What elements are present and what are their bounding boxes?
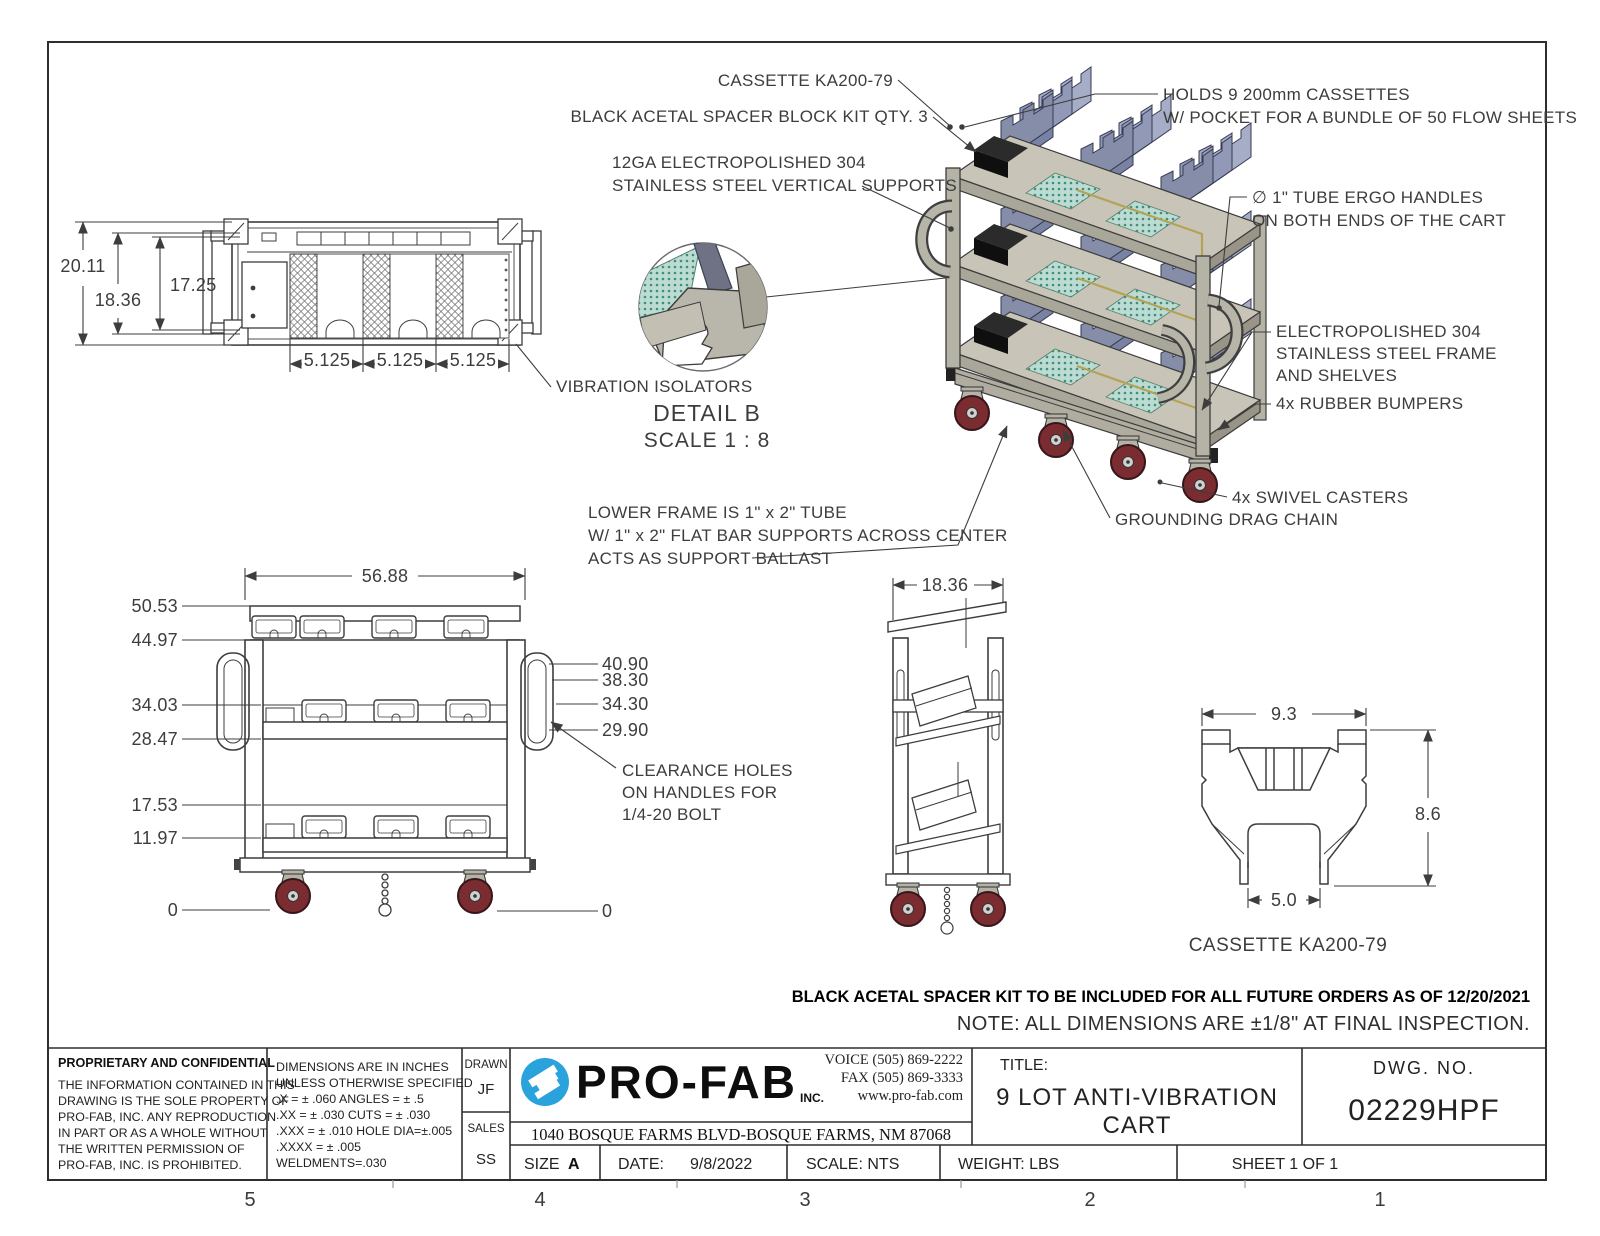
label-handles-1: ∅ 1" TUBE ERGO HANDLES bbox=[1252, 188, 1483, 207]
label-holds-2: W/ POCKET FOR A BUNDLE OF 50 FLOW SHEETS bbox=[1163, 108, 1577, 127]
tolerance-line: WELDMENTS=.030 bbox=[276, 1156, 387, 1170]
front-clip bbox=[302, 700, 346, 722]
zone-3: 3 bbox=[799, 1189, 810, 1211]
top-view-perforated-panels bbox=[290, 254, 463, 338]
label-lower-frame-1: LOWER FRAME IS 1" x 2" TUBE bbox=[588, 503, 847, 522]
company-cell: PRO-FAB INC. VOICE (505) 869-2222 FAX (5… bbox=[521, 1052, 964, 1144]
scale-value: SCALE: NTS bbox=[806, 1156, 899, 1173]
proprietary-heading: PROPRIETARY AND CONFIDENTIAL bbox=[58, 1056, 275, 1070]
sales-initials: SS bbox=[476, 1151, 496, 1168]
profab-logo-icon bbox=[521, 1058, 569, 1106]
proprietary-line: IN PART OR AS A WHOLE WITHOUT bbox=[58, 1126, 268, 1140]
top-view-cassette-slots bbox=[317, 254, 509, 338]
label-casters: 4x SWIVEL CASTERS bbox=[1232, 488, 1408, 507]
dim-28-47: 28.47 bbox=[131, 729, 178, 749]
drawing-canvas: 20.11 18.36 17.25 5.125 5.125 5.125 VIBR… bbox=[0, 0, 1600, 1236]
tolerance-line: .XX = ± .030 CUTS = ± .030 bbox=[276, 1108, 430, 1122]
dim-38-30: 38.30 bbox=[602, 670, 649, 690]
label-frame-1: ELECTROPOLISHED 304 bbox=[1276, 322, 1481, 341]
front-mid-rail bbox=[263, 722, 507, 739]
front-clip bbox=[300, 616, 344, 638]
dim-18-36-side: 18.36 bbox=[922, 575, 969, 595]
size-value: A bbox=[568, 1156, 580, 1173]
company-fax: FAX (505) 869-3333 bbox=[841, 1070, 963, 1086]
front-bumper bbox=[234, 859, 240, 870]
proprietary-line: PRO-FAB, INC. ANY REPRODUCTION bbox=[58, 1110, 276, 1124]
zone-2: 2 bbox=[1084, 1189, 1095, 1211]
side-left-post bbox=[893, 638, 908, 874]
label-holds-1: HOLDS 9 200mm CASSETTES bbox=[1163, 85, 1410, 104]
front-clip bbox=[372, 616, 416, 638]
iso-front-right-post bbox=[1196, 256, 1210, 456]
top-view-back-rail bbox=[297, 232, 470, 245]
dim-0-left: 0 bbox=[168, 900, 178, 920]
dim-34-03: 34.03 bbox=[131, 695, 178, 715]
company-voice: VOICE (505) 869-2222 bbox=[824, 1052, 963, 1068]
front-left-tab bbox=[266, 708, 294, 722]
proprietary-line: DRAWING IS THE SOLE PROPERTY OF bbox=[58, 1094, 289, 1108]
title-label: TITLE: bbox=[1000, 1057, 1048, 1074]
dim-50-53: 50.53 bbox=[131, 596, 178, 616]
dwg-label: DWG. NO. bbox=[1373, 1058, 1475, 1078]
front-right-post bbox=[507, 640, 525, 862]
front-left-post bbox=[245, 640, 263, 862]
date-label: DATE: bbox=[618, 1156, 664, 1173]
weight-value: WEIGHT: LBS bbox=[958, 1156, 1059, 1173]
vibration-isolators-label: VIBRATION ISOLATORS bbox=[556, 377, 753, 396]
front-clip bbox=[446, 816, 490, 838]
label-bumpers: 4x RUBBER BUMPERS bbox=[1276, 394, 1463, 413]
detail-b-scale: SCALE 1 : 8 bbox=[644, 429, 771, 452]
drawn-label: DRAWN bbox=[464, 1059, 507, 1071]
proprietary-line: THE INFORMATION CONTAINED IN THIS bbox=[58, 1078, 295, 1092]
dim-44-97: 44.97 bbox=[131, 630, 178, 650]
front-clip bbox=[374, 700, 418, 722]
tolerance-line: .X = ± .060 ANGLES = ± .5 bbox=[276, 1092, 424, 1106]
proprietary-line: PRO-FAB, INC. IS PROHIBITED. bbox=[58, 1158, 242, 1172]
company-address: 1040 BOSQUE FARMS BLVD-BOSQUE FARMS, NM … bbox=[531, 1125, 951, 1144]
dim-9-3: 9.3 bbox=[1271, 704, 1297, 724]
front-left-tab bbox=[266, 824, 294, 838]
front-clip bbox=[252, 616, 296, 638]
front-clip bbox=[446, 700, 490, 722]
detail-b-title: DETAIL B bbox=[653, 400, 761, 426]
label-clearance-3: 1/4-20 BOLT bbox=[622, 805, 721, 824]
label-clearance-2: ON HANDLES FOR bbox=[622, 783, 777, 802]
drawing-title-line1: 9 LOT ANTI-VIBRATION bbox=[996, 1084, 1278, 1111]
label-clearance-1: CLEARANCE HOLES bbox=[622, 761, 793, 780]
dim-20-11: 20.11 bbox=[60, 256, 105, 276]
date-value: 9/8/2022 bbox=[690, 1156, 752, 1173]
dim-17-25: 17.25 bbox=[170, 275, 217, 295]
cassette-detail-caption: CASSETTE KA200-79 bbox=[1189, 935, 1388, 956]
label-frame-2: STAINLESS STEEL FRAME bbox=[1276, 344, 1497, 363]
label-supports-2: STAINLESS STEEL VERTICAL SUPPORTS bbox=[612, 176, 957, 195]
tolerance-line: .XXX = ± .010 HOLE DIA=±.005 bbox=[276, 1124, 452, 1138]
label-cassette: CASSETTE KA200-79 bbox=[718, 71, 893, 90]
dim-11-97: 11.97 bbox=[133, 828, 178, 848]
zone-1: 1 bbox=[1374, 1189, 1385, 1211]
dim-56-88: 56.88 bbox=[362, 566, 409, 586]
dim-5-0: 5.0 bbox=[1271, 890, 1297, 910]
tolerance-line: DIMENSIONS ARE IN INCHES bbox=[276, 1060, 449, 1074]
front-clip bbox=[374, 816, 418, 838]
drawn-initials: JF bbox=[478, 1081, 495, 1098]
label-supports-1: 12GA ELECTROPOLISHED 304 bbox=[612, 153, 866, 172]
tolerance-line: .XXXX = ± .005 bbox=[276, 1140, 361, 1154]
front-clip bbox=[302, 816, 346, 838]
drawing-sheet: 20.11 18.36 17.25 5.125 5.125 5.125 VIBR… bbox=[0, 0, 1600, 1236]
dim-29-90: 29.90 bbox=[602, 720, 649, 740]
label-chain: GROUNDING DRAG CHAIN bbox=[1115, 510, 1338, 529]
label-handles-2: ON BOTH ENDS OF THE CART bbox=[1252, 211, 1506, 230]
dim-0-right: 0 bbox=[602, 901, 612, 921]
dim-34-30: 34.30 bbox=[602, 694, 649, 714]
profab-logotype: PRO-FAB bbox=[576, 1056, 797, 1108]
label-lower-frame-2: W/ 1" x 2" FLAT BAR SUPPORTS ACROSS CENT… bbox=[588, 526, 1008, 545]
front-bottom-rail bbox=[263, 838, 507, 852]
label-lower-frame-3: ACTS AS SUPPORT BALLAST bbox=[588, 549, 832, 568]
size-label: SIZE bbox=[524, 1156, 560, 1173]
zone-5: 5 bbox=[244, 1189, 255, 1211]
front-clip bbox=[444, 616, 488, 638]
top-view-mount-plate bbox=[242, 262, 287, 328]
dim-8-6: 8.6 bbox=[1415, 804, 1441, 824]
dim-18-36: 18.36 bbox=[95, 290, 142, 310]
tolerance-line: UNLESS OTHERWISE SPECIFIED bbox=[276, 1076, 473, 1090]
sheet-value: SHEET 1 OF 1 bbox=[1232, 1156, 1339, 1173]
dim-pitch-1: 5.125 bbox=[304, 350, 351, 370]
front-bumper bbox=[530, 859, 536, 870]
proprietary-line: THE WRITTEN PERMISSION OF bbox=[58, 1142, 245, 1156]
profab-inc: INC. bbox=[800, 1091, 824, 1105]
side-right-post bbox=[988, 638, 1003, 874]
dimensions-note: NOTE: ALL DIMENSIONS ARE ±1/8" AT FINAL … bbox=[957, 1013, 1530, 1035]
spacer-kit-note: BLACK ACETAL SPACER KIT TO BE INCLUDED F… bbox=[792, 988, 1530, 1006]
dim-pitch-3: 5.125 bbox=[450, 350, 497, 370]
company-web: www.pro-fab.com bbox=[858, 1088, 964, 1104]
dim-pitch-2: 5.125 bbox=[377, 350, 424, 370]
sales-label: SALES bbox=[467, 1123, 504, 1135]
label-spacer: BLACK ACETAL SPACER BLOCK KIT QTY. 3 bbox=[570, 107, 928, 126]
dwg-number: 02229HPF bbox=[1348, 1094, 1499, 1127]
zone-4: 4 bbox=[534, 1189, 545, 1211]
zone-markers: 5 4 3 2 1 bbox=[244, 1180, 1385, 1211]
drawing-title-line2: CART bbox=[1103, 1112, 1172, 1139]
dim-17-53: 17.53 bbox=[131, 795, 178, 815]
label-frame-3: AND SHELVES bbox=[1276, 366, 1397, 385]
